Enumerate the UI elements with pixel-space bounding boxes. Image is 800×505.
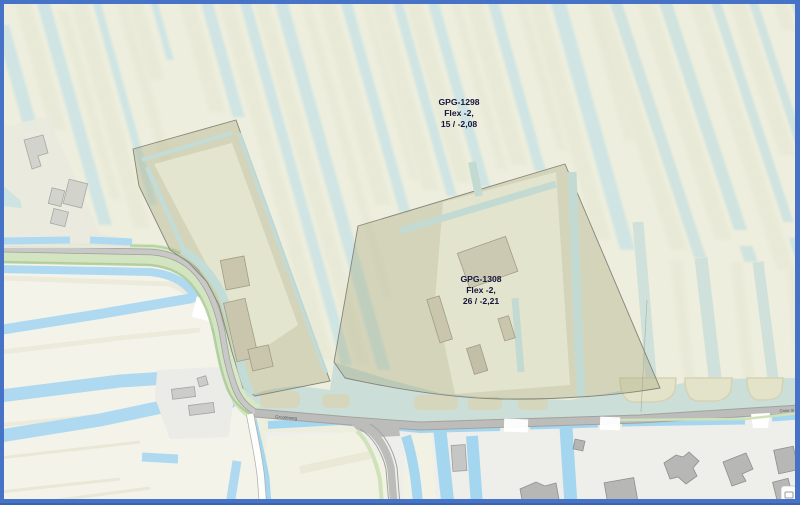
svg-text:Flex -2,: Flex -2,: [466, 285, 496, 295]
svg-text:15 / -2,08: 15 / -2,08: [441, 119, 478, 129]
svg-text:GPG-1298: GPG-1298: [438, 97, 479, 107]
svg-text:Flex -2,: Flex -2,: [444, 108, 474, 118]
svg-text:GPG-1308: GPG-1308: [460, 274, 501, 284]
svg-text:26 / -2,21: 26 / -2,21: [463, 296, 500, 306]
svg-text:Grote Sl: Grote Sl: [780, 408, 795, 414]
